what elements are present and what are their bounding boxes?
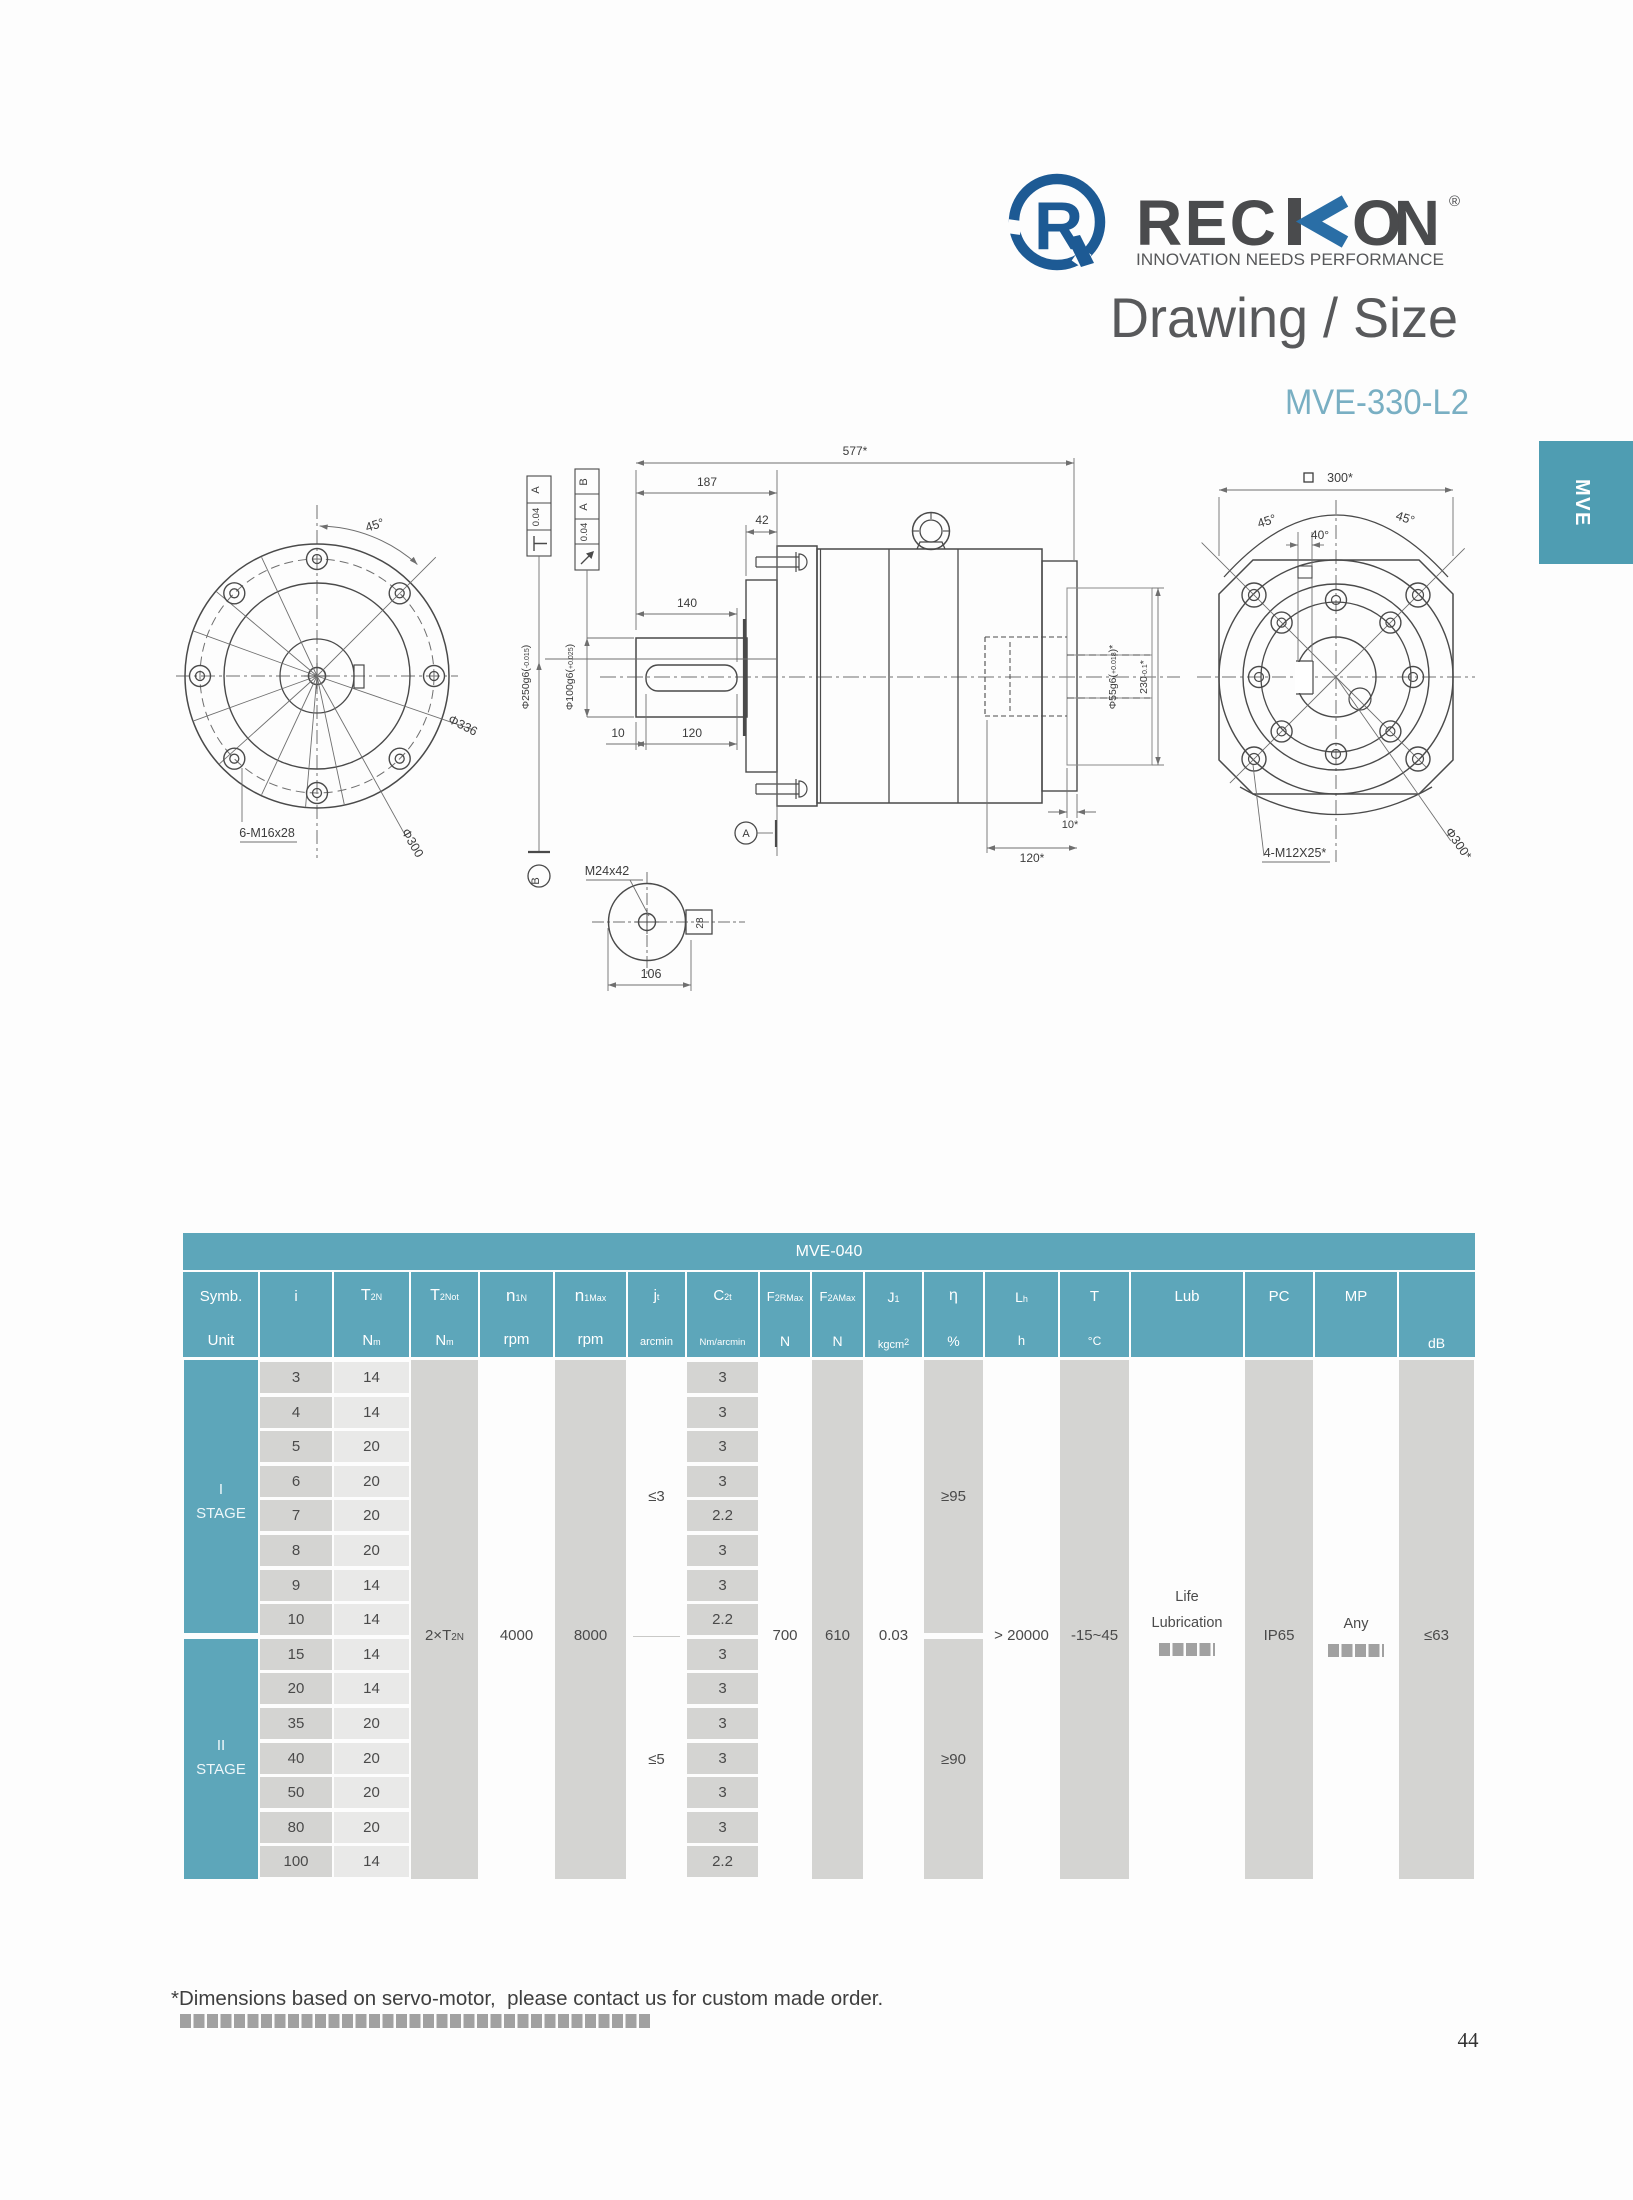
svg-text:45°: 45° [1256,512,1278,531]
svg-text:Φ55g6(+0.018)*: Φ55g6(+0.018)* [1107,645,1119,709]
svg-text:Φ250g6(-0.015): Φ250g6(-0.015) [520,645,532,709]
svg-text:B: B [530,877,542,884]
svg-text:Φ100g6(+0.025): Φ100g6(+0.025) [564,644,576,710]
svg-text:A: A [578,503,590,511]
svg-text:42: 42 [755,513,769,527]
svg-text:0.04: 0.04 [531,508,542,527]
svg-text:4-M12X25*: 4-M12X25* [1264,846,1327,860]
svg-text:45°: 45° [364,516,386,535]
svg-text:A: A [742,828,750,840]
svg-text:A: A [530,486,542,494]
svg-text:28: 28 [695,917,706,929]
svg-text:B: B [578,478,590,485]
svg-text:Φ336: Φ336 [446,712,480,738]
svg-text:Φ300: Φ300 [399,826,427,860]
svg-text:106: 106 [641,967,662,981]
svg-text:300*: 300* [1327,471,1353,485]
svg-text:577*: 577* [843,444,868,458]
svg-text:10: 10 [611,726,625,740]
svg-text:120*: 120* [1020,851,1045,865]
svg-text:187: 187 [697,475,717,489]
svg-text:230-0.1*: 230-0.1* [1138,660,1150,694]
svg-text:6-M16x28: 6-M16x28 [239,826,295,840]
svg-text:Φ300*: Φ300* [1442,825,1474,862]
svg-text:120: 120 [682,726,702,740]
svg-text:45°: 45° [1394,509,1416,528]
svg-text:M24x42: M24x42 [585,864,630,878]
svg-text:140: 140 [677,596,697,610]
svg-text:10*: 10* [1062,819,1079,831]
svg-text:0.04: 0.04 [579,523,590,542]
svg-text:40°: 40° [1311,528,1329,542]
